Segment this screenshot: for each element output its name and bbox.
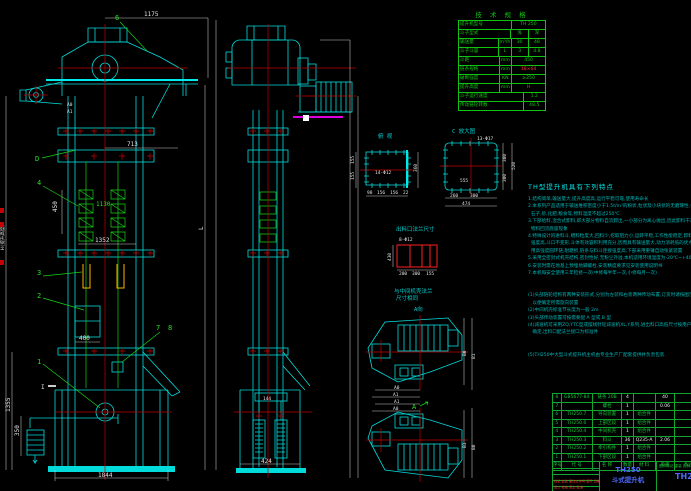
bom-seq: 2 — [553, 445, 561, 453]
spec-value: TH 250 — [511, 21, 545, 29]
leader-8: 8 — [168, 324, 172, 332]
leader-1: 1 — [37, 358, 41, 366]
dim-300c: 300 — [502, 174, 508, 182]
bom-qty: 1 — [621, 420, 632, 428]
bom-row: 3 TH250.3 料斗 36 Q235-A 2.06 — [552, 436, 691, 445]
bom-seq: 5 — [553, 420, 561, 428]
dim-B0b: B0 — [471, 444, 477, 450]
spec-unit: mm — [499, 66, 512, 74]
spec-label: 传动链轮转数 — [459, 102, 523, 110]
dim-360: 360 — [413, 164, 419, 172]
drawing-title: TH250 斗式提升机 — [600, 462, 657, 491]
bom-qty: 36 — [621, 437, 632, 445]
spec-value: 48 — [528, 39, 545, 47]
spec-table-title: 技 术 规 格 — [458, 9, 546, 19]
spec-row: 传动链轮转数 48.5 — [459, 101, 545, 110]
bom-name: 导向装置 — [592, 411, 621, 419]
dim-155b: 155 — [350, 172, 356, 180]
spec-label: 斗子型式 — [459, 30, 510, 38]
aux-view-label: A向 — [414, 305, 423, 313]
dim-424: 424 — [261, 458, 272, 465]
spec-value: 深 — [528, 30, 545, 38]
bom-row: 4 TH250.4 中间机壳 1 组合件 — [552, 427, 691, 436]
bom-material — [633, 403, 655, 411]
bom-row: 6 TH250.7 导向装置 1 组合件 — [552, 410, 691, 419]
spec-row: 斗子斗容 L 3 4.8 — [459, 47, 545, 56]
title-block-right: 图样标记 重量 比例 TH250 — [657, 462, 691, 491]
spec-value: 30 — [511, 39, 528, 47]
front-view: 6 D 4 3 2 1 I 7 8 A0 A1 1175 713 1130 45… — [0, 11, 216, 481]
spec-label: 斗距 — [459, 57, 499, 65]
spec-label: 斗子斗容 — [459, 48, 498, 56]
bom-seq: 4 — [553, 428, 561, 436]
bom-material — [633, 394, 655, 402]
spec-label: 提升机型号 — [459, 21, 511, 29]
bom-seq: 7 — [553, 403, 561, 411]
bom-remark — [674, 454, 691, 462]
dim-A1: A1 — [393, 392, 399, 398]
dim-B0: B0 — [462, 350, 468, 356]
flange-title: 出料口法兰尺寸 — [396, 225, 435, 233]
dim-156a: 156 — [377, 190, 385, 196]
flange-detail: 出料口法兰尺寸 8-Φ12 430 200 300 155 与中间机壳法兰 尺寸… — [387, 225, 437, 313]
bom-remark — [674, 437, 691, 445]
plan-view-top: 俯 视 14-Φ12 155 155 360 98 156 156 22 — [350, 132, 419, 196]
info-row: 图样标记 重量 比例 — [659, 464, 690, 469]
notes-heading: TH型提升机具有下列特点 — [528, 181, 691, 191]
dim-98: 98 — [367, 190, 373, 196]
bom-qty: 1 — [621, 445, 632, 453]
bom-remark — [674, 420, 691, 428]
spec-row: 提升机型号 TH 250 — [459, 21, 545, 29]
dim-474: 474 — [462, 201, 470, 207]
dim-155c: 155 — [426, 271, 434, 277]
bom-qty: 4 — [621, 394, 632, 402]
bom-weight: 2.06 — [655, 437, 675, 445]
spec-table: 技 术 规 格 提升机型号 TH 250 斗子型式 浅 深 输送量 m³/h 3… — [458, 9, 546, 111]
dim-A0b: A0 — [393, 406, 399, 412]
leader-4: 4 — [37, 179, 41, 187]
dim-1844: 1844 — [98, 472, 113, 479]
leader-2: 2 — [37, 292, 41, 300]
bom-weight — [655, 454, 675, 462]
dim-height: H(提升高度) — [0, 224, 6, 250]
bom-remark — [674, 445, 691, 453]
model-number: TH250 — [600, 466, 656, 474]
dim-B1: B1 — [471, 353, 477, 359]
bom-qty: 1 — [621, 403, 632, 411]
bom-row: 1 TH250.1 下部区段 1 组合件 — [552, 453, 691, 462]
head-detail-lower: A1 A0 B1 B0 — [366, 399, 477, 482]
spec-row: 输送量 m³/h 30 48 — [459, 38, 545, 47]
edge-mark — [0, 208, 4, 213]
spec-value: 450 — [511, 57, 545, 65]
bom-name: 链条 20B — [592, 394, 621, 402]
dim-1355: 1355 — [5, 397, 12, 412]
plan-c-title: C 放大图 — [452, 127, 476, 135]
dim-713: 713 — [127, 141, 138, 148]
sign-row: 设计 校核 审定 批准 — [554, 486, 583, 491]
dim-1130: 1130 — [96, 201, 111, 208]
bom-code: TH250.2 — [561, 445, 592, 453]
spec-value: 1.2 — [523, 93, 545, 101]
bom-material: 组合件 — [633, 445, 655, 453]
plan-view-c: C 放大图 13-Φ17 555 260 300 474 300 300 520 — [440, 127, 517, 207]
bom-material: 组合件 — [633, 411, 655, 419]
bom-seq: 6 — [553, 411, 561, 419]
dim-300a: 300 — [470, 193, 478, 199]
spec-unit: L — [498, 48, 510, 56]
bom-code: GB5677-84 — [561, 394, 592, 402]
spec-label: 提升高度 — [459, 84, 499, 92]
dim-300d: 300 — [412, 271, 420, 277]
bom-row: 7 螺栓 1 0.06 — [552, 402, 691, 411]
title-block: 标记 处数 更改文件号 签字 日期 设计 校核 审定 批准 TH250 斗式提升… — [552, 461, 691, 491]
bom-qty: 1 — [621, 411, 632, 419]
plan-c-holes: 13-Φ17 — [477, 136, 494, 142]
spec-value: ≥250 — [511, 75, 545, 83]
dim-1352: 1352 — [95, 237, 110, 244]
dim-350: 350 — [14, 425, 21, 436]
bom-name: 上部区段 — [592, 420, 621, 428]
revision-row: 标记 处数 更改文件号 签字 日期 — [554, 480, 600, 485]
bom-qty: 1 — [621, 454, 632, 462]
bom-weight — [655, 411, 675, 419]
flange-note-2: 尺寸相同 — [396, 294, 419, 302]
ref-a1: A1 — [67, 109, 73, 115]
bom-weight: 0.06 — [655, 403, 675, 411]
bom-qty: 1 — [621, 428, 632, 436]
edge-mark — [0, 222, 4, 227]
leader-6: 6 — [115, 14, 119, 22]
leader-3: 3 — [37, 269, 41, 277]
head-detail-upper: B0 B1 A0 A1 A — [366, 315, 477, 411]
bom-seq: 8 — [553, 394, 561, 402]
bom-code: TH250.4 — [561, 428, 592, 436]
bom-material: 组合件 — [633, 420, 655, 428]
spec-row: 提升高度 mm H — [459, 83, 545, 92]
ref-a0: A0 — [67, 102, 73, 108]
dim-260: 260 — [450, 193, 458, 199]
product-name: 斗式提升机 — [600, 474, 656, 484]
dim-450: 450 — [52, 201, 59, 212]
dim-1175: 1175 — [144, 11, 159, 18]
bom-name: 牵引构件 — [592, 445, 621, 453]
notes-block: TH型提升机具有下列特点 1.结构简单,输送量大,提升高度高,运行平稳可靠,使用… — [528, 181, 691, 359]
dim-520: 520 — [511, 162, 517, 170]
side-view: 144 424 — [226, 24, 358, 478]
bom-seq: 1 — [553, 454, 561, 462]
plan-top-holes: 14-Φ12 — [375, 170, 392, 176]
bom-remark — [674, 428, 691, 436]
dim-555: 555 — [460, 178, 468, 184]
bom-material: Q235-A — [633, 437, 655, 445]
spec-unit: mm — [499, 57, 512, 65]
spec-unit: m³/h — [498, 39, 510, 47]
plan-top-title: 俯 视 — [378, 132, 393, 140]
leader-7: 7 — [156, 324, 160, 332]
dim-400: 400 — [79, 335, 90, 342]
dim-430: 430 — [387, 253, 393, 261]
bom-code: TH250.7 — [561, 411, 592, 419]
dim-144: 144 — [263, 396, 271, 402]
edge-mark — [0, 260, 4, 265]
spec-value: 48.5 — [523, 102, 545, 110]
bom-remark — [674, 403, 691, 411]
bom-weight — [655, 445, 675, 453]
spec-unit: KN — [499, 75, 512, 83]
bom-material: 组合件 — [633, 428, 655, 436]
cad-drawing-canvas[interactable]: 6 D 4 3 2 1 I 7 8 A0 A1 1175 713 1130 45… — [0, 0, 691, 491]
bom-material: 组合件 — [633, 454, 655, 462]
spec-row: 链条规格 mm 18×64 — [459, 65, 545, 74]
section-mark: I — [41, 384, 45, 391]
dim-A0: A0 — [394, 385, 400, 391]
bom-weight — [655, 420, 675, 428]
flange-note-1: 与中间机壳法兰 — [394, 287, 433, 295]
bom-table: 8 GB5677-84 链条 20B 4 40 7 螺栓 1 0.06 6 TH… — [552, 393, 691, 471]
dim-155a: 155 — [350, 156, 356, 164]
spec-label: 链条规格 — [459, 66, 499, 74]
dim-300b: 300 — [502, 154, 508, 162]
bom-code — [561, 403, 592, 411]
notes-body: 1.结构简单,输送量大,提升高度高,运行平稳可靠,使用寿命长 2.本系列产品适用… — [528, 196, 691, 359]
bom-row: 8 GB5677-84 链条 20B 4 40 — [552, 393, 691, 402]
spec-value: 3 — [511, 48, 528, 56]
dim-200: 200 — [399, 271, 407, 277]
spec-row: 破断强度 KN ≥250 — [459, 74, 545, 83]
dim-B1b: B1 — [462, 442, 468, 448]
spec-label: 破断强度 — [459, 75, 499, 83]
bom-name: 下部区段 — [592, 454, 621, 462]
leader-D: D — [35, 155, 39, 163]
dim-156b: 156 — [390, 190, 398, 196]
spec-row: 斗子型式 浅 深 — [459, 29, 545, 38]
bom-code: TH250.6 — [561, 420, 592, 428]
bom-code: TH250.1 — [561, 454, 592, 462]
spec-value: 浅 — [510, 30, 527, 38]
bom-row: 2 TH250.2 牵引构件 1 组合件 — [552, 444, 691, 453]
bom-name: 螺栓 — [592, 403, 621, 411]
dim-L: L — [198, 226, 205, 230]
bom-weight: 40 — [655, 394, 675, 402]
bom-name: 中间机壳 — [592, 428, 621, 436]
bom-row: 5 TH250.6 上部区段 1 组合件 — [552, 419, 691, 428]
spec-value: 18×64 — [511, 66, 545, 74]
bom-code: TH250.3 — [561, 437, 592, 445]
spec-label: 输送量 — [459, 39, 498, 47]
spec-unit: mm — [499, 84, 512, 92]
bom-remark — [674, 394, 691, 402]
dim-22: 22 — [403, 190, 409, 196]
drawing-number: TH250 — [675, 472, 691, 481]
bom-seq: 3 — [553, 437, 561, 445]
spec-label: 斗子运行速度 — [459, 93, 523, 101]
bom-weight — [655, 428, 675, 436]
bom-remark — [674, 411, 691, 419]
flange-holes: 8-Φ12 — [399, 237, 413, 243]
spec-row: 斗距 mm 450 — [459, 56, 545, 65]
dim-A1b: A1 — [394, 399, 400, 405]
spec-row: 斗子运行速度 1.2 — [459, 92, 545, 101]
spec-value: H — [511, 84, 545, 92]
bom-name: 料斗 — [592, 437, 621, 445]
spec-value: 4.8 — [528, 48, 545, 56]
signature-grid: 标记 处数 更改文件号 签字 日期 设计 校核 审定 批准 — [553, 462, 600, 491]
